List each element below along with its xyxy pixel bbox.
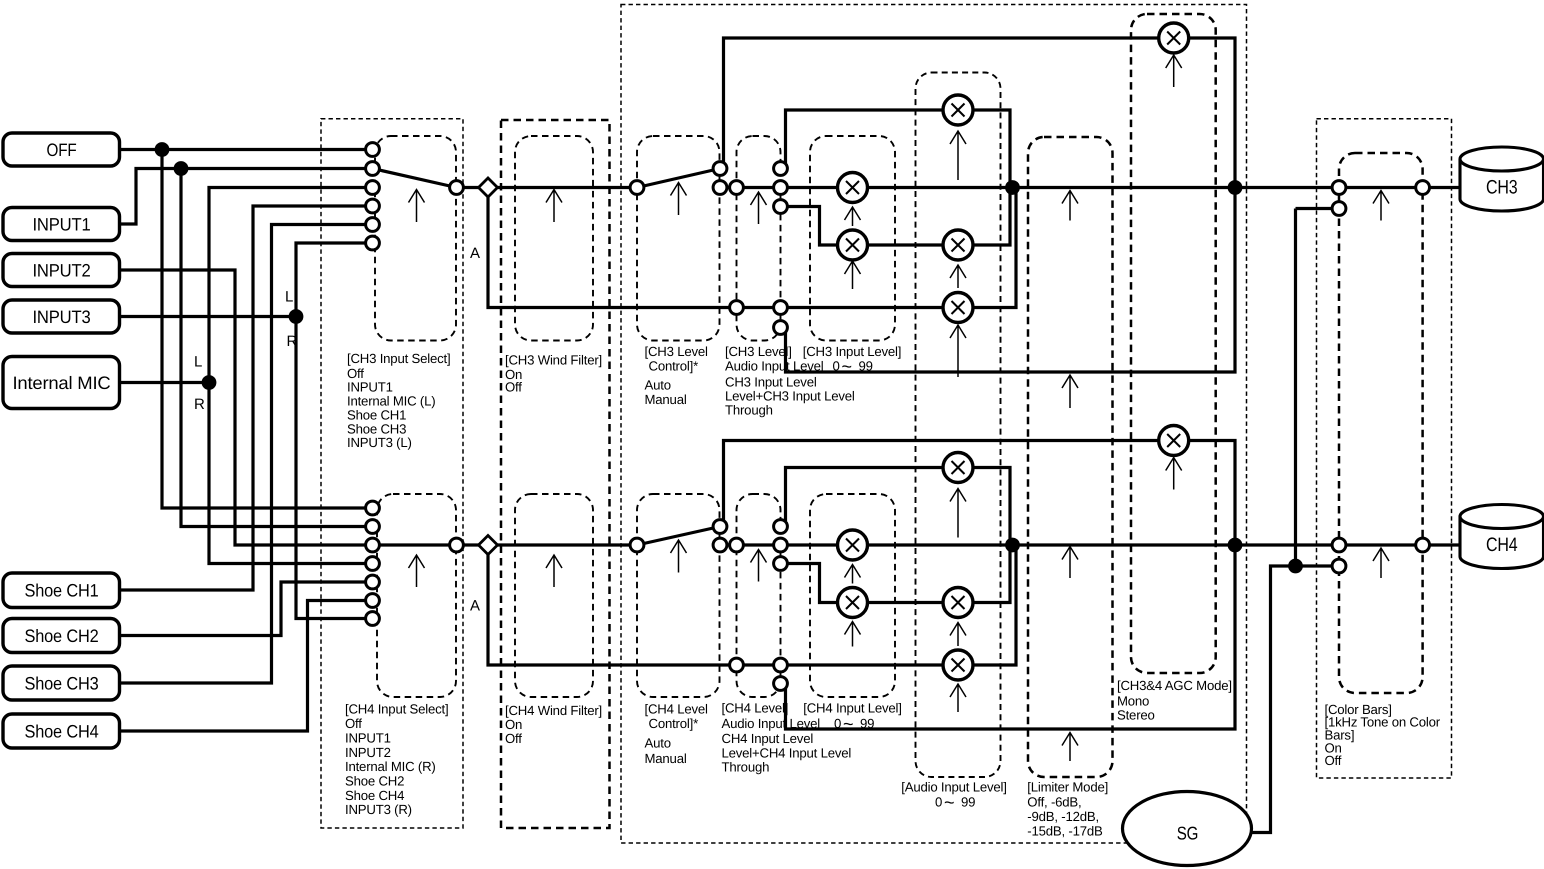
svg-text:Audio Input Level: Audio Input Level — [725, 359, 824, 374]
svg-text:CH3 Input Level: CH3 Input Level — [725, 374, 817, 389]
svg-text:CH3: CH3 — [1486, 177, 1518, 199]
svg-text:INPUT3 (L): INPUT3 (L) — [347, 435, 412, 450]
svg-text:INPUT3: INPUT3 — [33, 307, 91, 327]
svg-text:Off: Off — [505, 731, 522, 746]
svg-text:Through: Through — [725, 403, 773, 418]
svg-text:Auto: Auto — [645, 378, 671, 393]
svg-text:CH4 Input Level: CH4 Input Level — [722, 731, 814, 746]
svg-text:Stereo: Stereo — [1117, 707, 1155, 722]
svg-text:Shoe CH4: Shoe CH4 — [25, 721, 99, 741]
svg-text:Level+CH3 Input Level: Level+CH3 Input Level — [725, 389, 855, 404]
svg-text:INPUT1: INPUT1 — [345, 730, 391, 745]
svg-text:L: L — [285, 289, 293, 306]
svg-text:INPUT2: INPUT2 — [33, 260, 91, 280]
svg-text:Audio Input Level: Audio Input Level — [722, 716, 821, 731]
svg-text:Internal MIC (R): Internal MIC (R) — [345, 759, 436, 774]
svg-text:R: R — [287, 333, 298, 350]
svg-text:0~99: 0~99 — [834, 714, 874, 734]
svg-text:A: A — [470, 598, 480, 615]
svg-text:On: On — [505, 717, 522, 732]
svg-text:Off: Off — [1325, 753, 1342, 768]
svg-text:[CH3 Wind Filter]: [CH3 Wind Filter] — [505, 353, 602, 368]
svg-text:Through: Through — [722, 760, 770, 775]
svg-text:[CH3 Input Level]: [CH3 Input Level] — [803, 344, 902, 359]
svg-text:Shoe CH2: Shoe CH2 — [345, 774, 404, 789]
svg-text:[CH4 Wind Filter]: [CH4 Wind Filter] — [505, 703, 602, 718]
svg-text:[CH3 Level]: [CH3 Level] — [725, 344, 792, 359]
svg-text:SG: SG — [1177, 823, 1199, 844]
svg-text:Control]*: Control]* — [649, 716, 699, 731]
svg-text:Shoe CH2: Shoe CH2 — [25, 626, 99, 646]
svg-text:Shoe CH1: Shoe CH1 — [25, 581, 99, 601]
svg-text:[Limiter Mode]: [Limiter Mode] — [1027, 779, 1108, 794]
svg-text:0~99: 0~99 — [833, 357, 873, 377]
svg-text:A: A — [470, 245, 480, 262]
svg-text:[CH3 Level: [CH3 Level — [645, 344, 709, 359]
svg-text:Auto: Auto — [645, 736, 671, 751]
svg-text:Internal MIC: Internal MIC — [13, 373, 111, 393]
svg-text:CH4: CH4 — [1486, 534, 1518, 556]
svg-text:0~99: 0~99 — [935, 793, 975, 813]
svg-text:[CH4 Level]: [CH4 Level] — [722, 701, 789, 716]
svg-text:[CH4 Input Select]: [CH4 Input Select] — [345, 702, 448, 717]
svg-text:Shoe CH3: Shoe CH3 — [25, 673, 99, 693]
svg-text:[CH3 Input Select]: [CH3 Input Select] — [347, 351, 450, 366]
svg-text:[CH4 Level: [CH4 Level — [645, 701, 709, 716]
svg-text:INPUT1: INPUT1 — [33, 214, 91, 234]
svg-text:Off, -6dB,: Off, -6dB, — [1027, 795, 1081, 810]
svg-text:-15dB, -17dB: -15dB, -17dB — [1027, 824, 1103, 839]
svg-text:Control]*: Control]* — [649, 359, 699, 374]
svg-text:Level+CH4 Input Level: Level+CH4 Input Level — [722, 745, 852, 760]
svg-text:OFF: OFF — [47, 140, 77, 160]
svg-text:R: R — [194, 396, 205, 413]
svg-text:Manual: Manual — [645, 392, 687, 407]
svg-text:L: L — [194, 354, 202, 371]
svg-text:INPUT1: INPUT1 — [347, 380, 393, 395]
svg-text:[CH3&4 AGC Mode]: [CH3&4 AGC Mode] — [1117, 678, 1232, 693]
svg-text:Internal MIC (L): Internal MIC (L) — [347, 394, 435, 409]
svg-text:Manual: Manual — [645, 751, 687, 766]
svg-text:-9dB, -12dB,: -9dB, -12dB, — [1027, 809, 1099, 824]
svg-text:INPUT3 (R): INPUT3 (R) — [345, 802, 412, 817]
svg-text:Off: Off — [345, 716, 362, 731]
svg-text:Off: Off — [505, 380, 522, 395]
svg-text:INPUT2: INPUT2 — [345, 745, 391, 760]
svg-text:Shoe CH4: Shoe CH4 — [345, 788, 404, 803]
